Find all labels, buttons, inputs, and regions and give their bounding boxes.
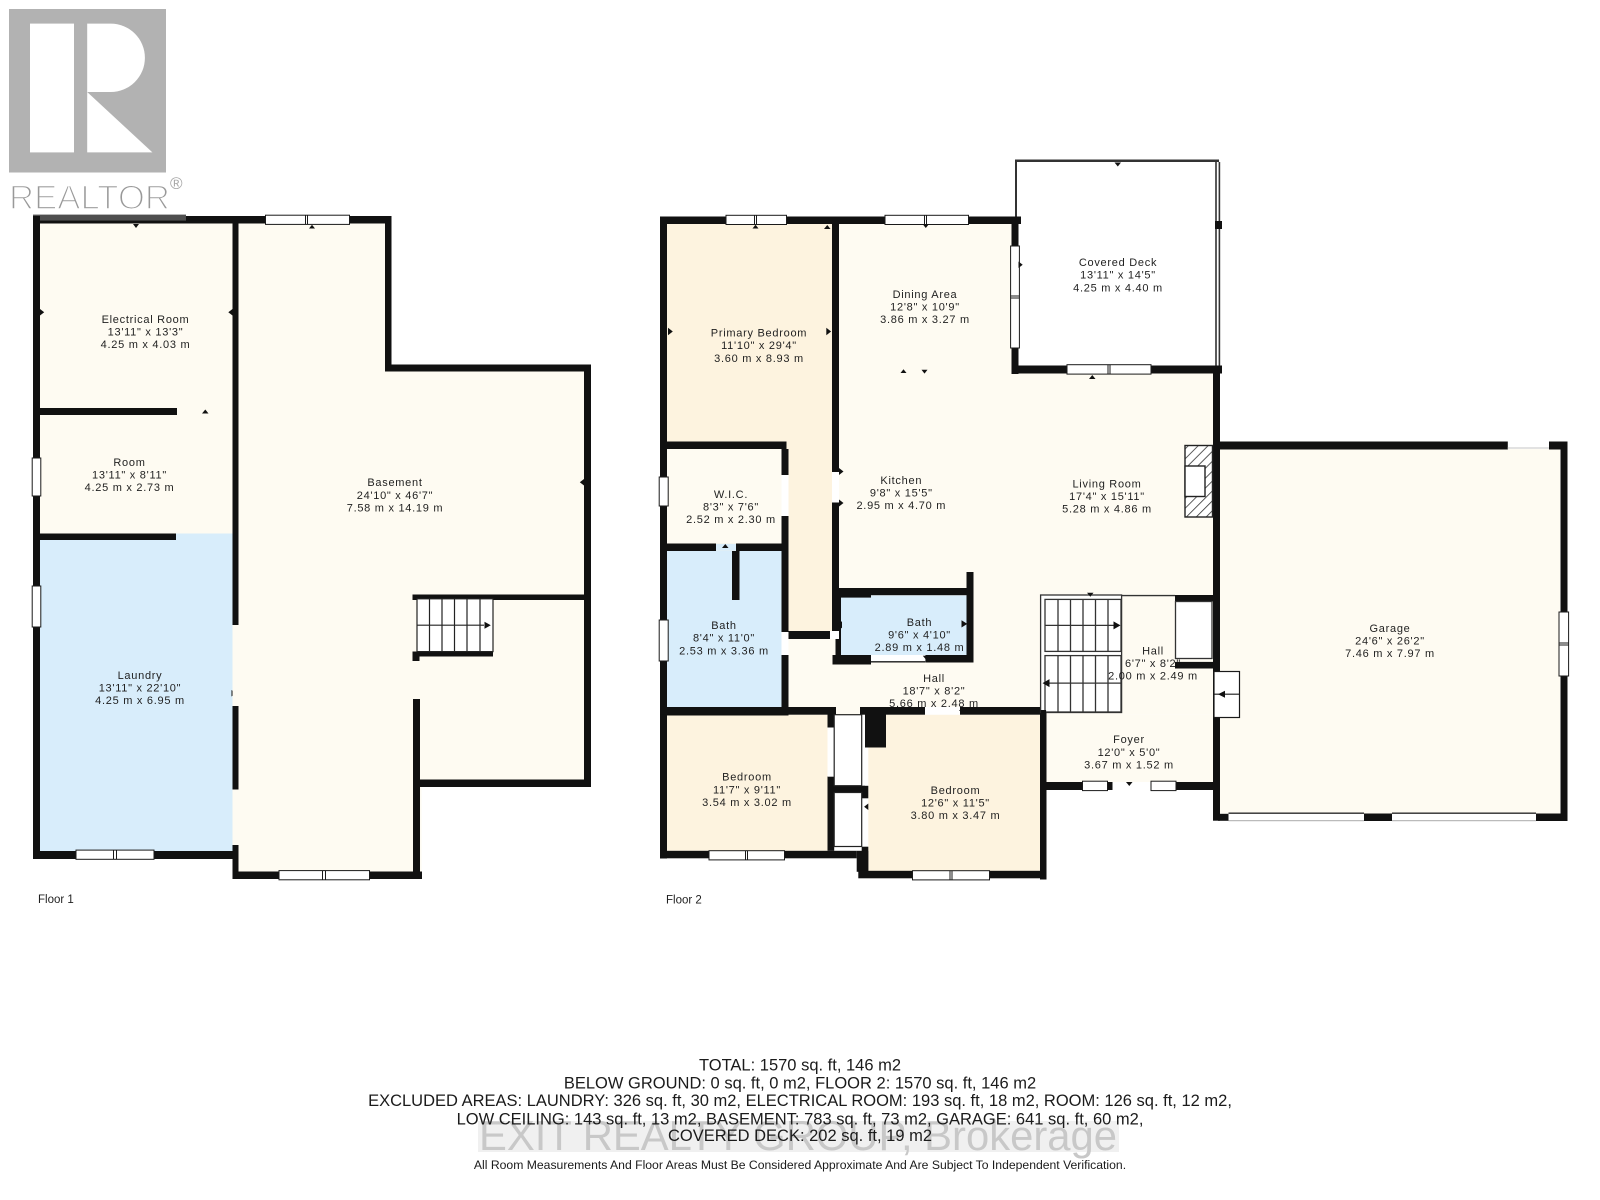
- svg-text:8'4" x 11'0": 8'4" x 11'0": [693, 633, 755, 645]
- svg-text:7.58 m x 14.19 m: 7.58 m x 14.19 m: [347, 502, 444, 514]
- svg-text:Floor 1: Floor 1: [38, 894, 74, 906]
- svg-text:5.28 m x 4.86 m: 5.28 m x 4.86 m: [1062, 504, 1152, 516]
- svg-text:2.00 m x 2.49 m: 2.00 m x 2.49 m: [1108, 671, 1198, 683]
- svg-text:BELOW GROUND: 0 sq. ft, 0 m2,: BELOW GROUND: 0 sq. ft, 0 m2, FLOOR 2: 1…: [564, 1075, 1036, 1093]
- svg-text:2.95 m x 4.70 m: 2.95 m x 4.70 m: [856, 500, 946, 512]
- svg-text:Basement: Basement: [367, 477, 422, 489]
- svg-text:COVERED DECK: 202 sq. ft, 19 m: COVERED DECK: 202 sq. ft, 19 m2: [668, 1127, 932, 1145]
- svg-text:Living Room: Living Room: [1072, 478, 1141, 490]
- svg-text:Kitchen: Kitchen: [880, 475, 922, 487]
- svg-text:4.25 m x 4.03 m: 4.25 m x 4.03 m: [101, 339, 191, 351]
- svg-text:3.80 m x 3.47 m: 3.80 m x 3.47 m: [911, 810, 1001, 822]
- svg-text:Hall: Hall: [923, 673, 945, 685]
- svg-text:2.52 m x 2.30 m: 2.52 m x 2.30 m: [686, 514, 776, 526]
- svg-text:3.67 m x 1.52 m: 3.67 m x 1.52 m: [1084, 759, 1174, 771]
- svg-text:®: ®: [170, 174, 183, 193]
- svg-text:13'11" x 8'11": 13'11" x 8'11": [92, 470, 167, 482]
- svg-text:W.I.C.: W.I.C.: [714, 489, 748, 501]
- svg-text:TOTAL: 1570 sq. ft, 146 m2: TOTAL: 1570 sq. ft, 146 m2: [699, 1057, 901, 1075]
- svg-text:Bath: Bath: [711, 620, 737, 632]
- svg-text:3.60 m x 8.93 m: 3.60 m x 8.93 m: [714, 353, 804, 365]
- svg-text:13'11" x 22'10": 13'11" x 22'10": [99, 682, 182, 694]
- svg-text:3.54 m x 3.02 m: 3.54 m x 3.02 m: [702, 797, 792, 809]
- svg-text:All Room Measurements And Floo: All Room Measurements And Floor Areas Mu…: [474, 1158, 1126, 1172]
- svg-text:Dining Area: Dining Area: [893, 289, 958, 301]
- svg-text:Bedroom: Bedroom: [931, 785, 981, 797]
- svg-text:Electrical Room: Electrical Room: [102, 314, 190, 326]
- svg-text:Foyer: Foyer: [1113, 734, 1145, 746]
- svg-text:6'7" x 8'2": 6'7" x 8'2": [1125, 658, 1181, 670]
- svg-text:13'11" x 14'5": 13'11" x 14'5": [1080, 270, 1156, 282]
- svg-text:11'10" x 29'4": 11'10" x 29'4": [721, 340, 797, 352]
- svg-text:Bedroom: Bedroom: [722, 772, 772, 784]
- svg-text:12'6" x 11'5": 12'6" x 11'5": [921, 798, 990, 810]
- svg-text:11'7" x 9'11": 11'7" x 9'11": [713, 784, 781, 796]
- svg-text:12'0" x 5'0": 12'0" x 5'0": [1098, 747, 1161, 759]
- svg-text:Bath: Bath: [907, 617, 933, 629]
- svg-text:2.53 m x 3.36 m: 2.53 m x 3.36 m: [679, 645, 769, 657]
- svg-text:7.46 m x 7.97 m: 7.46 m x 7.97 m: [1345, 648, 1435, 660]
- svg-text:Covered Deck: Covered Deck: [1079, 257, 1157, 269]
- svg-text:2.89 m x 1.48 m: 2.89 m x 1.48 m: [875, 642, 965, 654]
- svg-text:4.25 m x 2.73 m: 4.25 m x 2.73 m: [85, 482, 175, 494]
- svg-text:REALTOR: REALTOR: [9, 179, 170, 217]
- svg-text:24'10" x 46'7": 24'10" x 46'7": [357, 490, 434, 502]
- svg-text:8'3" x 7'6": 8'3" x 7'6": [703, 501, 759, 513]
- svg-text:Hall: Hall: [1142, 645, 1164, 657]
- svg-text:4.25 m x 4.40 m: 4.25 m x 4.40 m: [1073, 282, 1163, 294]
- svg-text:4.25 m x 6.95 m: 4.25 m x 6.95 m: [95, 695, 185, 707]
- svg-text:18'7" x 8'2": 18'7" x 8'2": [903, 686, 966, 698]
- svg-text:9'6" x 4'10": 9'6" x 4'10": [888, 630, 951, 642]
- svg-text:LOW CEILING: 143 sq. ft, 13 m2: LOW CEILING: 143 sq. ft, 13 m2, BASEMENT…: [457, 1110, 1144, 1128]
- svg-text:Garage: Garage: [1369, 623, 1410, 635]
- svg-text:12'8" x 10'9": 12'8" x 10'9": [890, 302, 960, 314]
- svg-text:3.86 m x 3.27 m: 3.86 m x 3.27 m: [880, 314, 970, 326]
- svg-text:Floor 2: Floor 2: [666, 895, 702, 907]
- svg-text:Room: Room: [113, 457, 145, 469]
- svg-text:17'4" x 15'11": 17'4" x 15'11": [1069, 491, 1145, 503]
- svg-text:13'11" x 13'3": 13'11" x 13'3": [108, 327, 184, 339]
- svg-text:Primary Bedroom: Primary Bedroom: [711, 328, 807, 340]
- svg-text:9'8" x 15'5": 9'8" x 15'5": [870, 487, 933, 499]
- svg-text:5.66 m x 2.48 m: 5.66 m x 2.48 m: [889, 698, 979, 710]
- svg-text:Laundry: Laundry: [118, 670, 163, 682]
- svg-text:24'6" x 26'2": 24'6" x 26'2": [1355, 636, 1425, 648]
- svg-text:EXCLUDED AREAS: LAUNDRY: 326 s: EXCLUDED AREAS: LAUNDRY: 326 sq. ft, 30 …: [368, 1092, 1232, 1110]
